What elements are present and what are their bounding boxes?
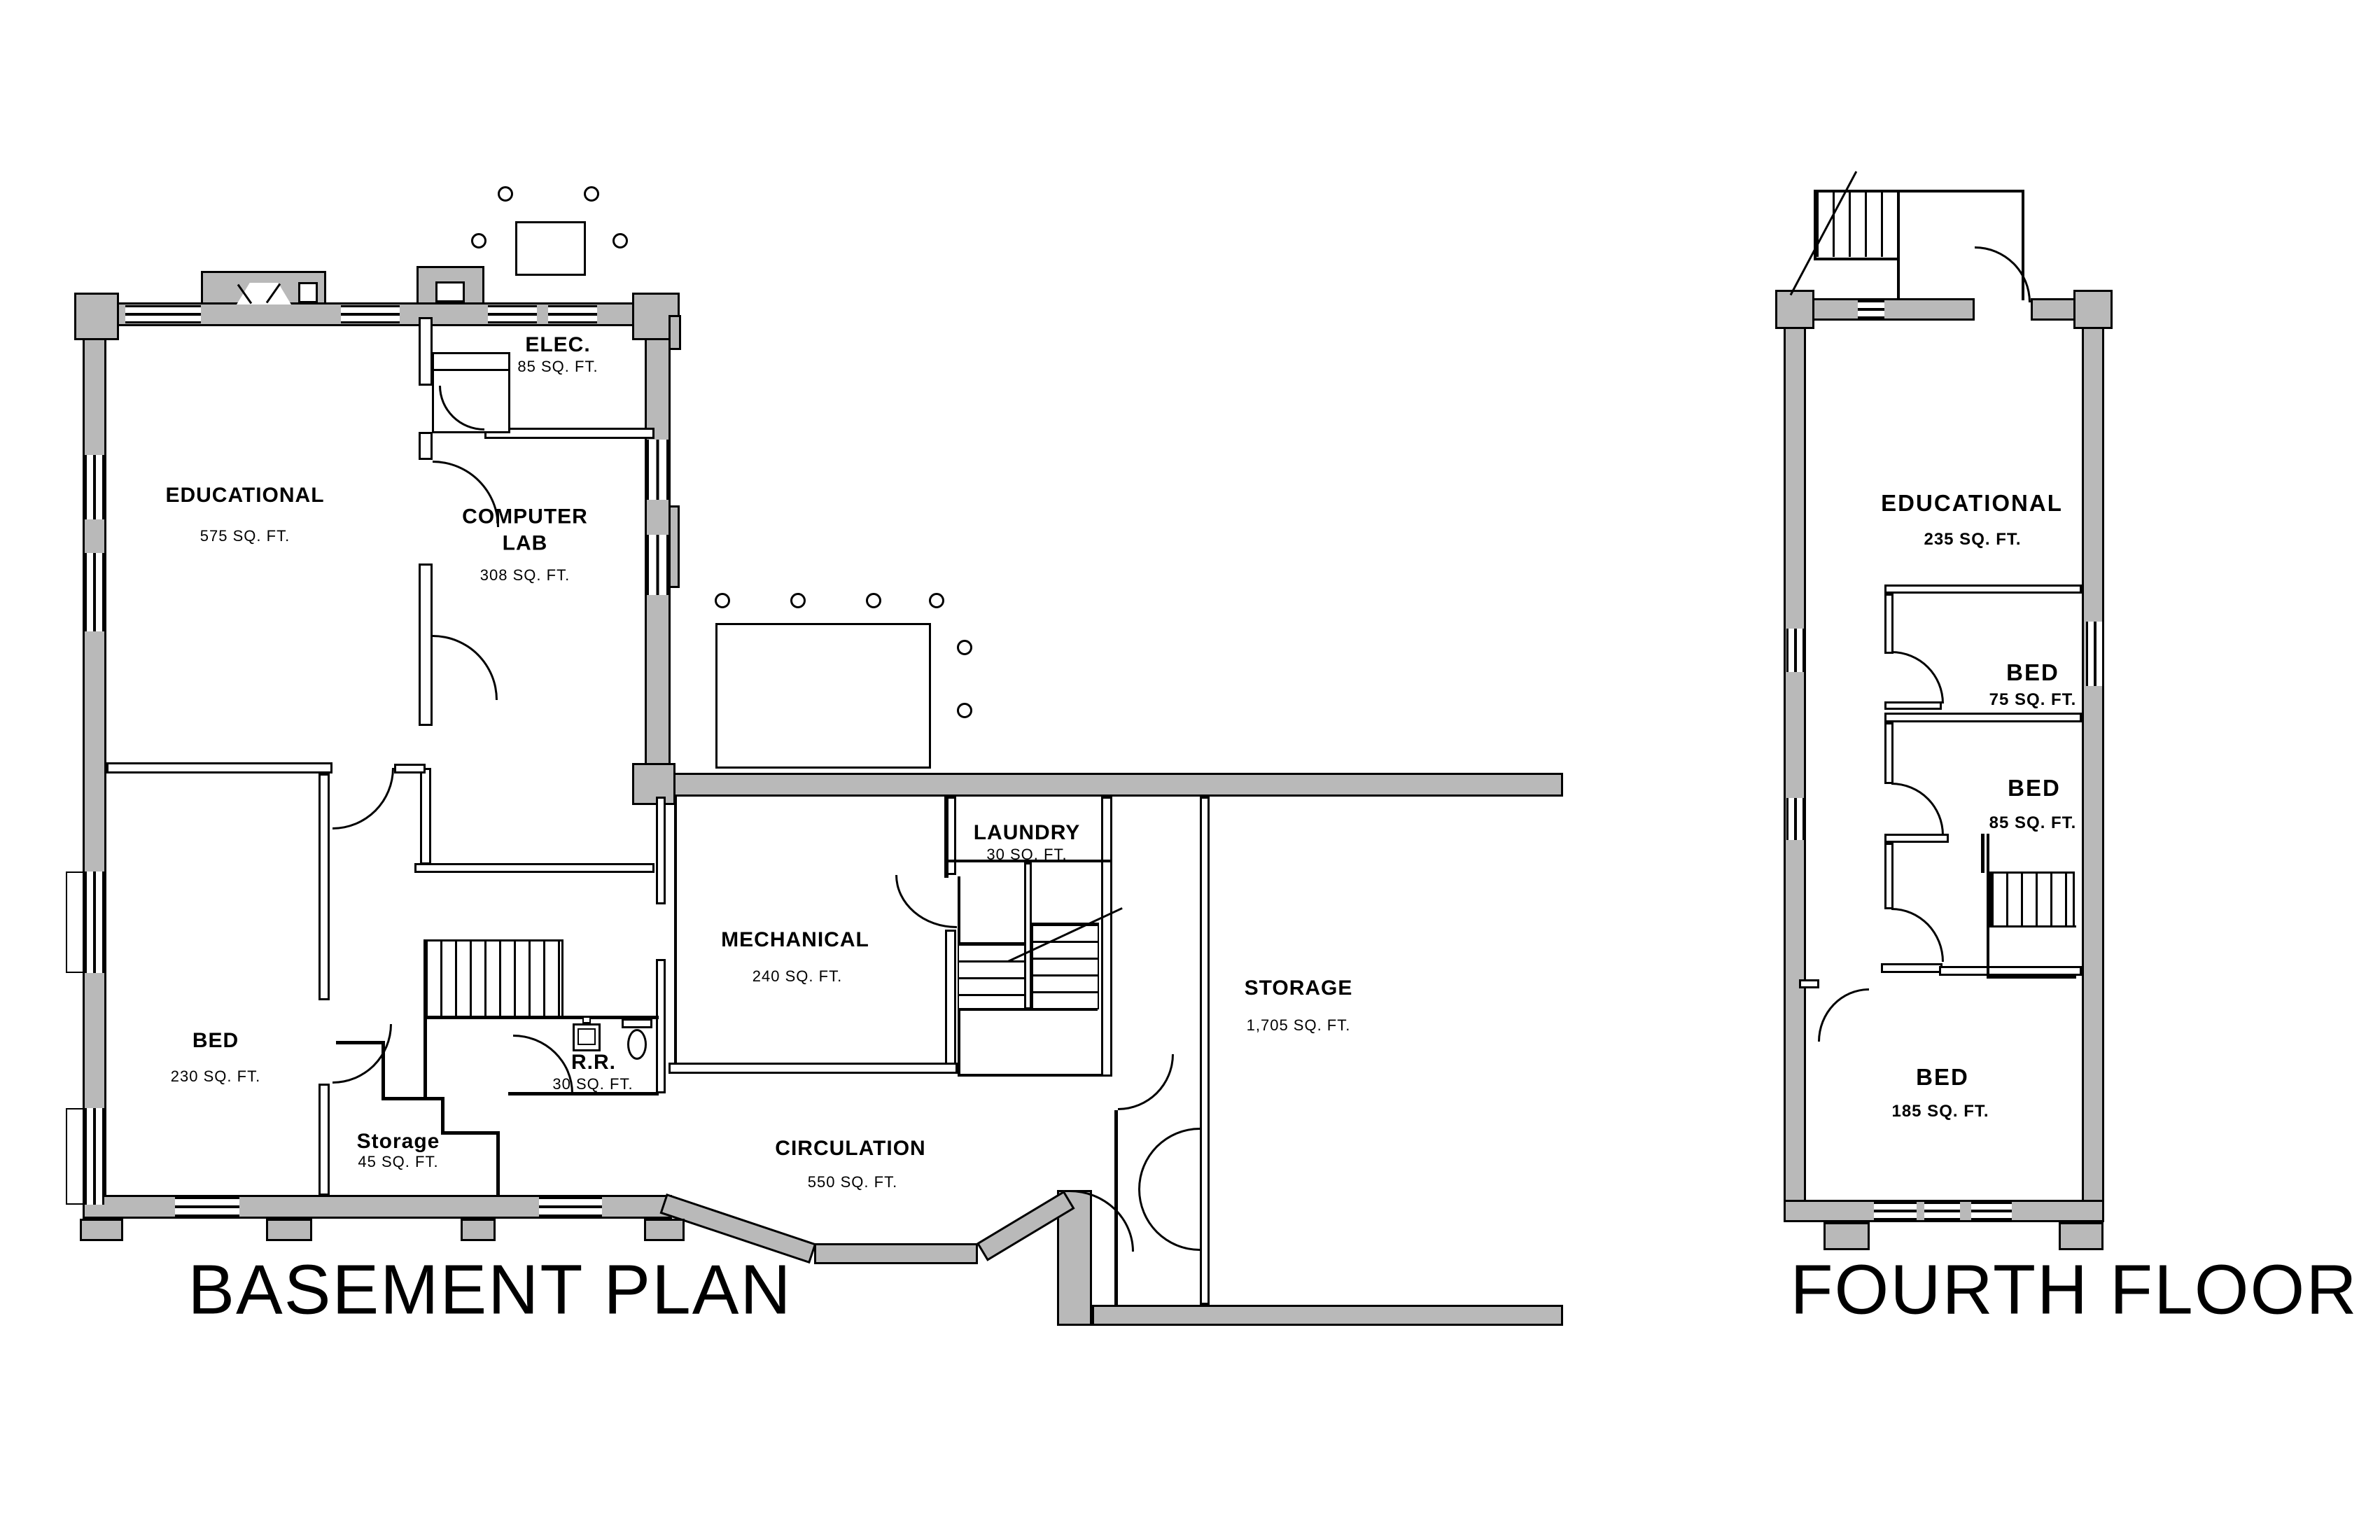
partition-bed75-left [1884, 594, 1893, 654]
corner-quoin [2073, 290, 2113, 329]
floor-plan-sheet: EDUCATIONAL 575 SQ. FT. COMPUTER LAB 308… [0, 0, 2380, 1540]
pilaster [2059, 1222, 2103, 1250]
stair-enclosure-mid [1897, 190, 1900, 300]
door-hall [1891, 908, 1944, 962]
room-name-bed85: BED [2008, 775, 2061, 801]
wall-exterior-right [2082, 298, 2104, 1222]
room-name-bed75: BED [2006, 659, 2059, 686]
room-area-bed85: 85 SQ. FT. [1989, 813, 2077, 833]
window [1786, 798, 1805, 840]
fourth-floor-plan: EDUCATIONAL 235 SQ. FT. BED 75 SQ. FT. B… [0, 0, 2380, 1540]
door-bed185 [1818, 988, 1869, 1042]
window [1924, 1202, 1960, 1220]
window [2086, 622, 2104, 686]
partition-stub [1881, 963, 1942, 973]
partition-hall-left [1884, 843, 1893, 909]
partition-bed85-top [1884, 713, 2082, 722]
room-area-bed75: 75 SQ. FT. [1989, 690, 2077, 710]
door-bed75 [1891, 651, 1944, 703]
stair-landing-line [1987, 976, 2076, 979]
window [1786, 629, 1805, 672]
pilaster [1823, 1222, 1870, 1250]
stairs [1989, 871, 2075, 927]
partition-bed85-bottom [1884, 834, 1949, 843]
stair-step-wall [1981, 834, 1984, 873]
stair-landing-line [1987, 925, 2076, 927]
partition-stub [1799, 979, 1819, 988]
room-area-bed185: 185 SQ. FT. [1891, 1102, 1989, 1121]
corner-quoin [1775, 290, 1814, 329]
window [1874, 1202, 1917, 1220]
partition-bed85-left [1884, 722, 1893, 784]
door-bed85 [1891, 783, 1944, 835]
partition-stub [1884, 701, 1942, 710]
room-area-educational: 235 SQ. FT. [1924, 530, 2021, 549]
window [1971, 1202, 2012, 1220]
room-name-educational: EDUCATIONAL [1881, 490, 2063, 517]
wall-exterior-left [1784, 298, 1806, 1222]
room-name-bed185: BED [1916, 1064, 1969, 1091]
fourth-floor-title: FOURTH FLOOR [1790, 1250, 2358, 1331]
stair-enclosure-bottom [1814, 258, 1900, 260]
window [1858, 300, 1884, 318]
partition-bed75-top [1884, 584, 2082, 594]
partition-bed185-top [1939, 966, 2082, 976]
